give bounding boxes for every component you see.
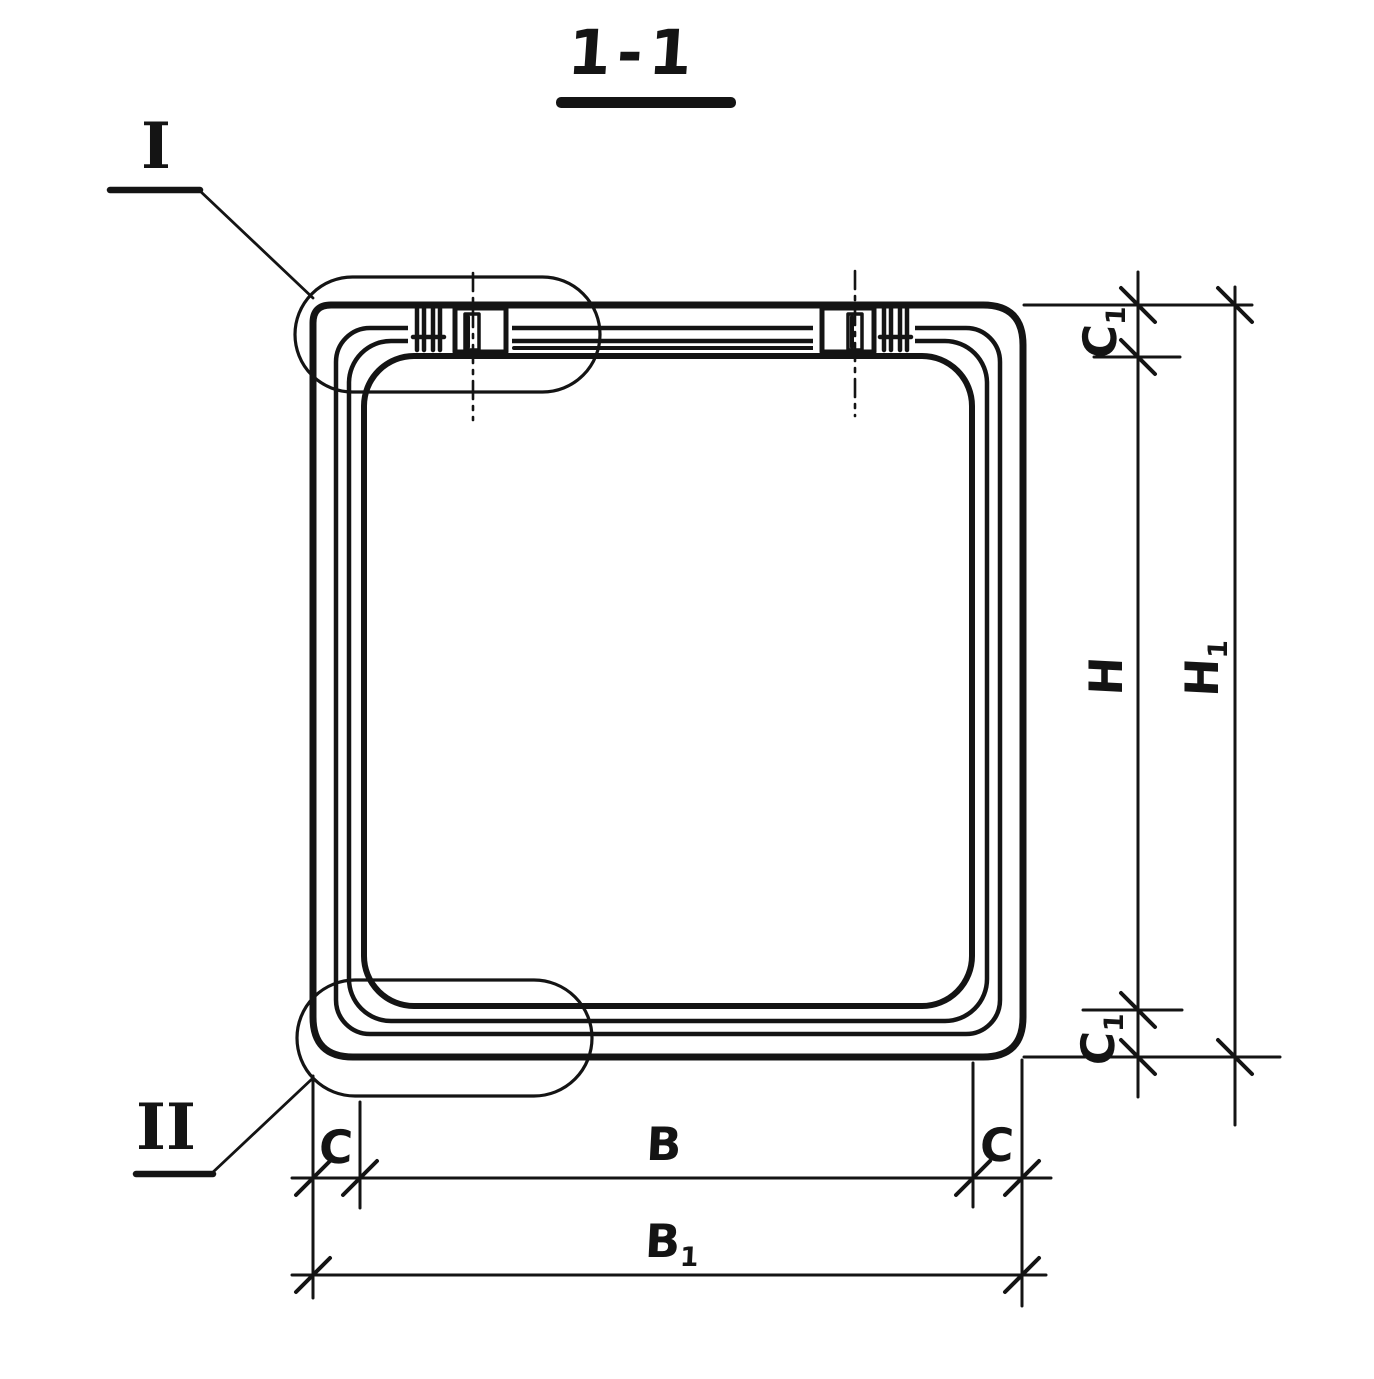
dim-label-c1-top: C1 bbox=[1077, 305, 1123, 360]
detail-marker-I: I bbox=[141, 115, 171, 179]
section-drawing bbox=[0, 0, 1374, 1379]
dim-label-c-left: C bbox=[318, 1124, 354, 1170]
dim-label-h: H bbox=[1083, 656, 1129, 697]
dim-label-b1: B1 bbox=[644, 1218, 700, 1264]
dim-label-b: B bbox=[645, 1121, 682, 1167]
leader-detail-I bbox=[110, 190, 313, 298]
drawing-sheet: 1-1 I II C1 H H1 C1 C B C B1 bbox=[0, 0, 1374, 1379]
frame-outer-contour bbox=[313, 305, 1023, 1057]
frame-inner-opening bbox=[364, 356, 972, 1006]
frame-ring-line-outer bbox=[336, 328, 1000, 1034]
dim-label-c-right: C bbox=[979, 1122, 1015, 1168]
section-title-underline bbox=[556, 97, 736, 108]
section-title: 1-1 bbox=[566, 22, 700, 84]
detail-marker-II: II bbox=[136, 1096, 196, 1160]
joint-centerlines bbox=[473, 271, 855, 420]
top-joint-left bbox=[408, 308, 512, 352]
dimension-lines-right bbox=[1024, 272, 1280, 1125]
frame-outline bbox=[313, 305, 1023, 1057]
top-joint-right bbox=[813, 308, 915, 352]
frame-ring-line-inner bbox=[349, 341, 987, 1021]
dim-label-h1: H1 bbox=[1179, 638, 1225, 697]
detail-boundary-II bbox=[297, 980, 592, 1096]
dim-label-c1-bottom: C1 bbox=[1075, 1012, 1121, 1067]
